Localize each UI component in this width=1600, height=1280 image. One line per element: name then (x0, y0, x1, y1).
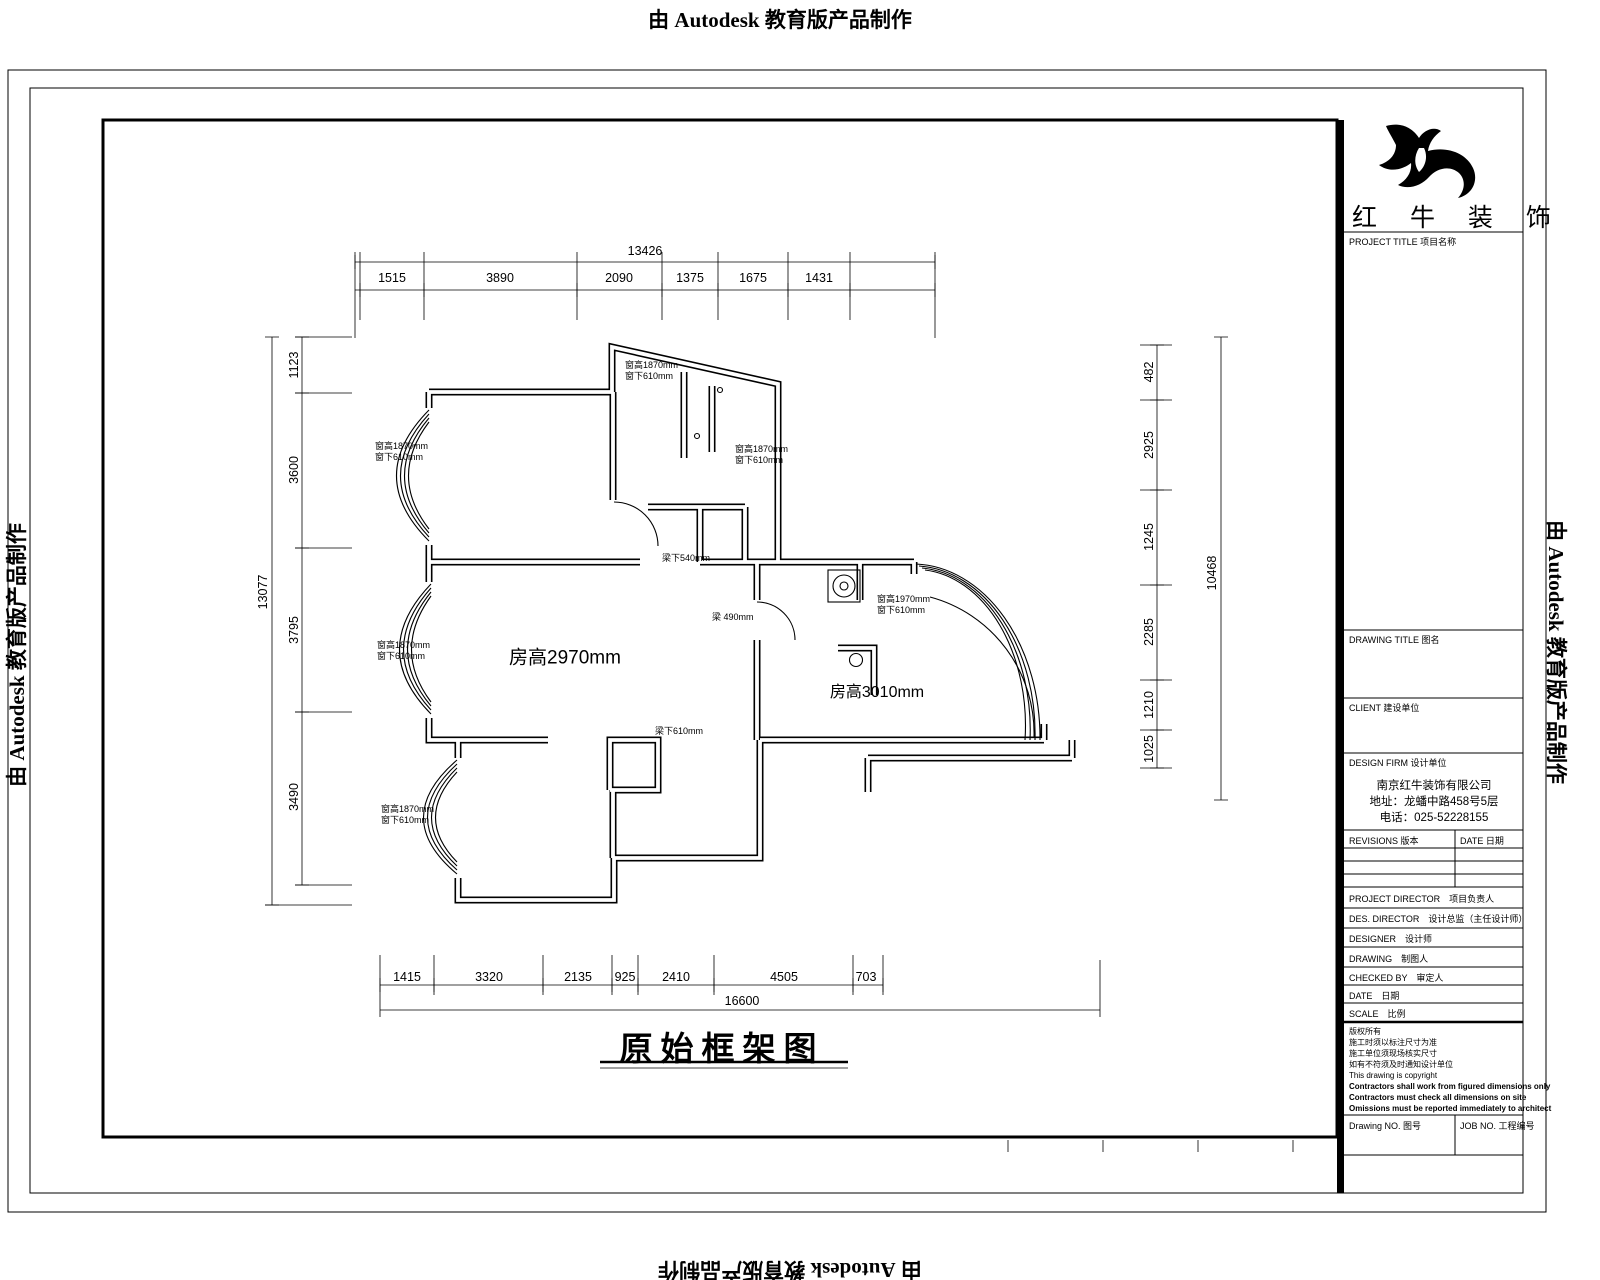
cad-sheet: 由 Autodesk 教育版产品制作 由 Autodesk 教育版产品制作 由 … (0, 0, 1600, 1280)
disclaimer-line: Contractors must check all dimensions on… (1349, 1093, 1526, 1104)
floor-plan-walls (429, 347, 1072, 900)
personnel-row: SCALE 比例 (1349, 1007, 1406, 1020)
client-label: CLIENT 建设单位 (1349, 701, 1419, 714)
dim-right-seg: 1025 (1142, 735, 1156, 763)
dim-bottom-overall: 16600 (725, 994, 760, 1008)
dim-bottom-seg: 703 (856, 970, 877, 984)
dim-top-seg: 1675 (739, 271, 767, 285)
rednull-logo (1379, 125, 1475, 198)
company-logo-text: 红 牛 装 饰 (1352, 198, 1564, 234)
dim-bottom-seg: 2410 (662, 970, 690, 984)
dim-left-seg: 3795 (287, 616, 301, 644)
beam-annotation: 梁下540mm (662, 553, 710, 564)
dim-right-seg: 1245 (1142, 523, 1156, 551)
dim-right-seg: 2285 (1142, 618, 1156, 646)
disclaimer-line: Omissions must be reported immediately t… (1349, 1104, 1551, 1115)
dim-bottom-seg: 3320 (475, 970, 503, 984)
dim-left-seg: 1123 (287, 352, 301, 379)
drawing-no-label: Drawing NO. 图号 (1349, 1119, 1421, 1132)
dim-right-seg: 1210 (1142, 691, 1156, 719)
project-title-label: PROJECT TITLE 项目名称 (1349, 235, 1456, 248)
dim-top-seg: 3890 (486, 271, 514, 285)
revisions-label: REVISIONS 版本 (1349, 834, 1419, 847)
personnel-row: CHECKED BY 审定人 (1349, 971, 1443, 984)
beam-annotation: 梁下610mm (655, 726, 703, 737)
dim-right-seg: 2925 (1142, 431, 1156, 459)
dim-bottom-seg: 2135 (564, 970, 592, 984)
dim-left-seg: 3490 (287, 783, 301, 811)
job-no-label: JOB NO. 工程编号 (1460, 1119, 1535, 1132)
personnel-row: DES. DIRECTOR 设计总监（主任设计师） (1349, 912, 1527, 925)
window-annotation: 窗高1870mm窗下610mm (381, 804, 434, 825)
disclaimer-line: 如有不符须及时通知设计单位 (1349, 1060, 1453, 1071)
dim-right-seg: 482 (1142, 362, 1156, 383)
bay-window-arcs (397, 410, 1041, 874)
dim-top-seg: 1431 (805, 271, 833, 285)
disclaimer-line: 版权所有 (1349, 1027, 1381, 1038)
design-firm-label: DESIGN FIRM 设计单位 (1349, 756, 1447, 769)
dim-top-overall: 13426 (628, 244, 663, 258)
firm-name: 南京红牛装饰有限公司 (1377, 777, 1492, 793)
personnel-row: DESIGNER 设计师 (1349, 932, 1432, 945)
watermark-left: 由 Autodesk 教育版产品制作 (1, 523, 31, 787)
personnel-row: PROJECT DIRECTOR 项目负责人 (1349, 892, 1494, 905)
firm-address: 地址：龙蟠中路458号5层 (1369, 793, 1498, 809)
drawing-title-label: DRAWING TITLE 图名 (1349, 633, 1440, 646)
window-annotation: 窗高1870mm窗下610mm (375, 441, 428, 462)
watermark-right: 由 Autodesk 教育版产品制作 (1542, 520, 1572, 784)
dim-top-seg: 1375 (676, 271, 704, 285)
disclaimer-line: This drawing is copyright (1349, 1071, 1437, 1082)
dim-top-seg: 1515 (378, 271, 406, 285)
room-height-label: 房高3010mm (830, 678, 924, 702)
dim-bottom-seg: 4505 (770, 970, 798, 984)
revision-date-label: DATE 日期 (1460, 834, 1504, 847)
dim-right-overall: 10468 (1205, 556, 1219, 591)
window-annotation: 窗高1870mm窗下610mm (625, 360, 678, 381)
dim-left-seg: 3600 (287, 456, 301, 484)
disclaimer-line: 施工单位须现场核实尺寸 (1349, 1049, 1437, 1060)
floor-plan-walls-inner (429, 347, 1072, 900)
personnel-row: DRAWING 制图人 (1349, 952, 1428, 965)
window-annotation: 窗高1870mm窗下610mm (377, 640, 430, 661)
dim-bottom-seg: 1415 (393, 970, 421, 984)
watermark-top: 由 Autodesk 教育版产品制作 (648, 4, 912, 34)
room-height-label: 房高2970mm (509, 643, 621, 670)
personnel-row: DATE 日期 (1349, 989, 1399, 1002)
door-swing-arcs (614, 502, 1034, 738)
plan-title: 原始框架图 (620, 1022, 825, 1070)
window-annotation: 窗高1970mm窗下610mm (877, 594, 930, 615)
dim-top-seg: 2090 (605, 271, 633, 285)
disclaimer-line: 施工时须以标注尺寸为准 (1349, 1038, 1437, 1049)
watermark-bottom: 由 Autodesk 教育版产品制作 (658, 1256, 922, 1280)
beam-annotation: 梁 490mm (712, 612, 754, 623)
dim-bottom-seg: 925 (615, 970, 636, 984)
window-annotation: 窗高1870mm窗下610mm (735, 444, 788, 465)
firm-phone: 电话：025-52228155 (1380, 809, 1489, 825)
dim-left-overall: 13077 (256, 575, 270, 610)
disclaimer-line: Contractors shall work from figured dime… (1349, 1082, 1550, 1093)
